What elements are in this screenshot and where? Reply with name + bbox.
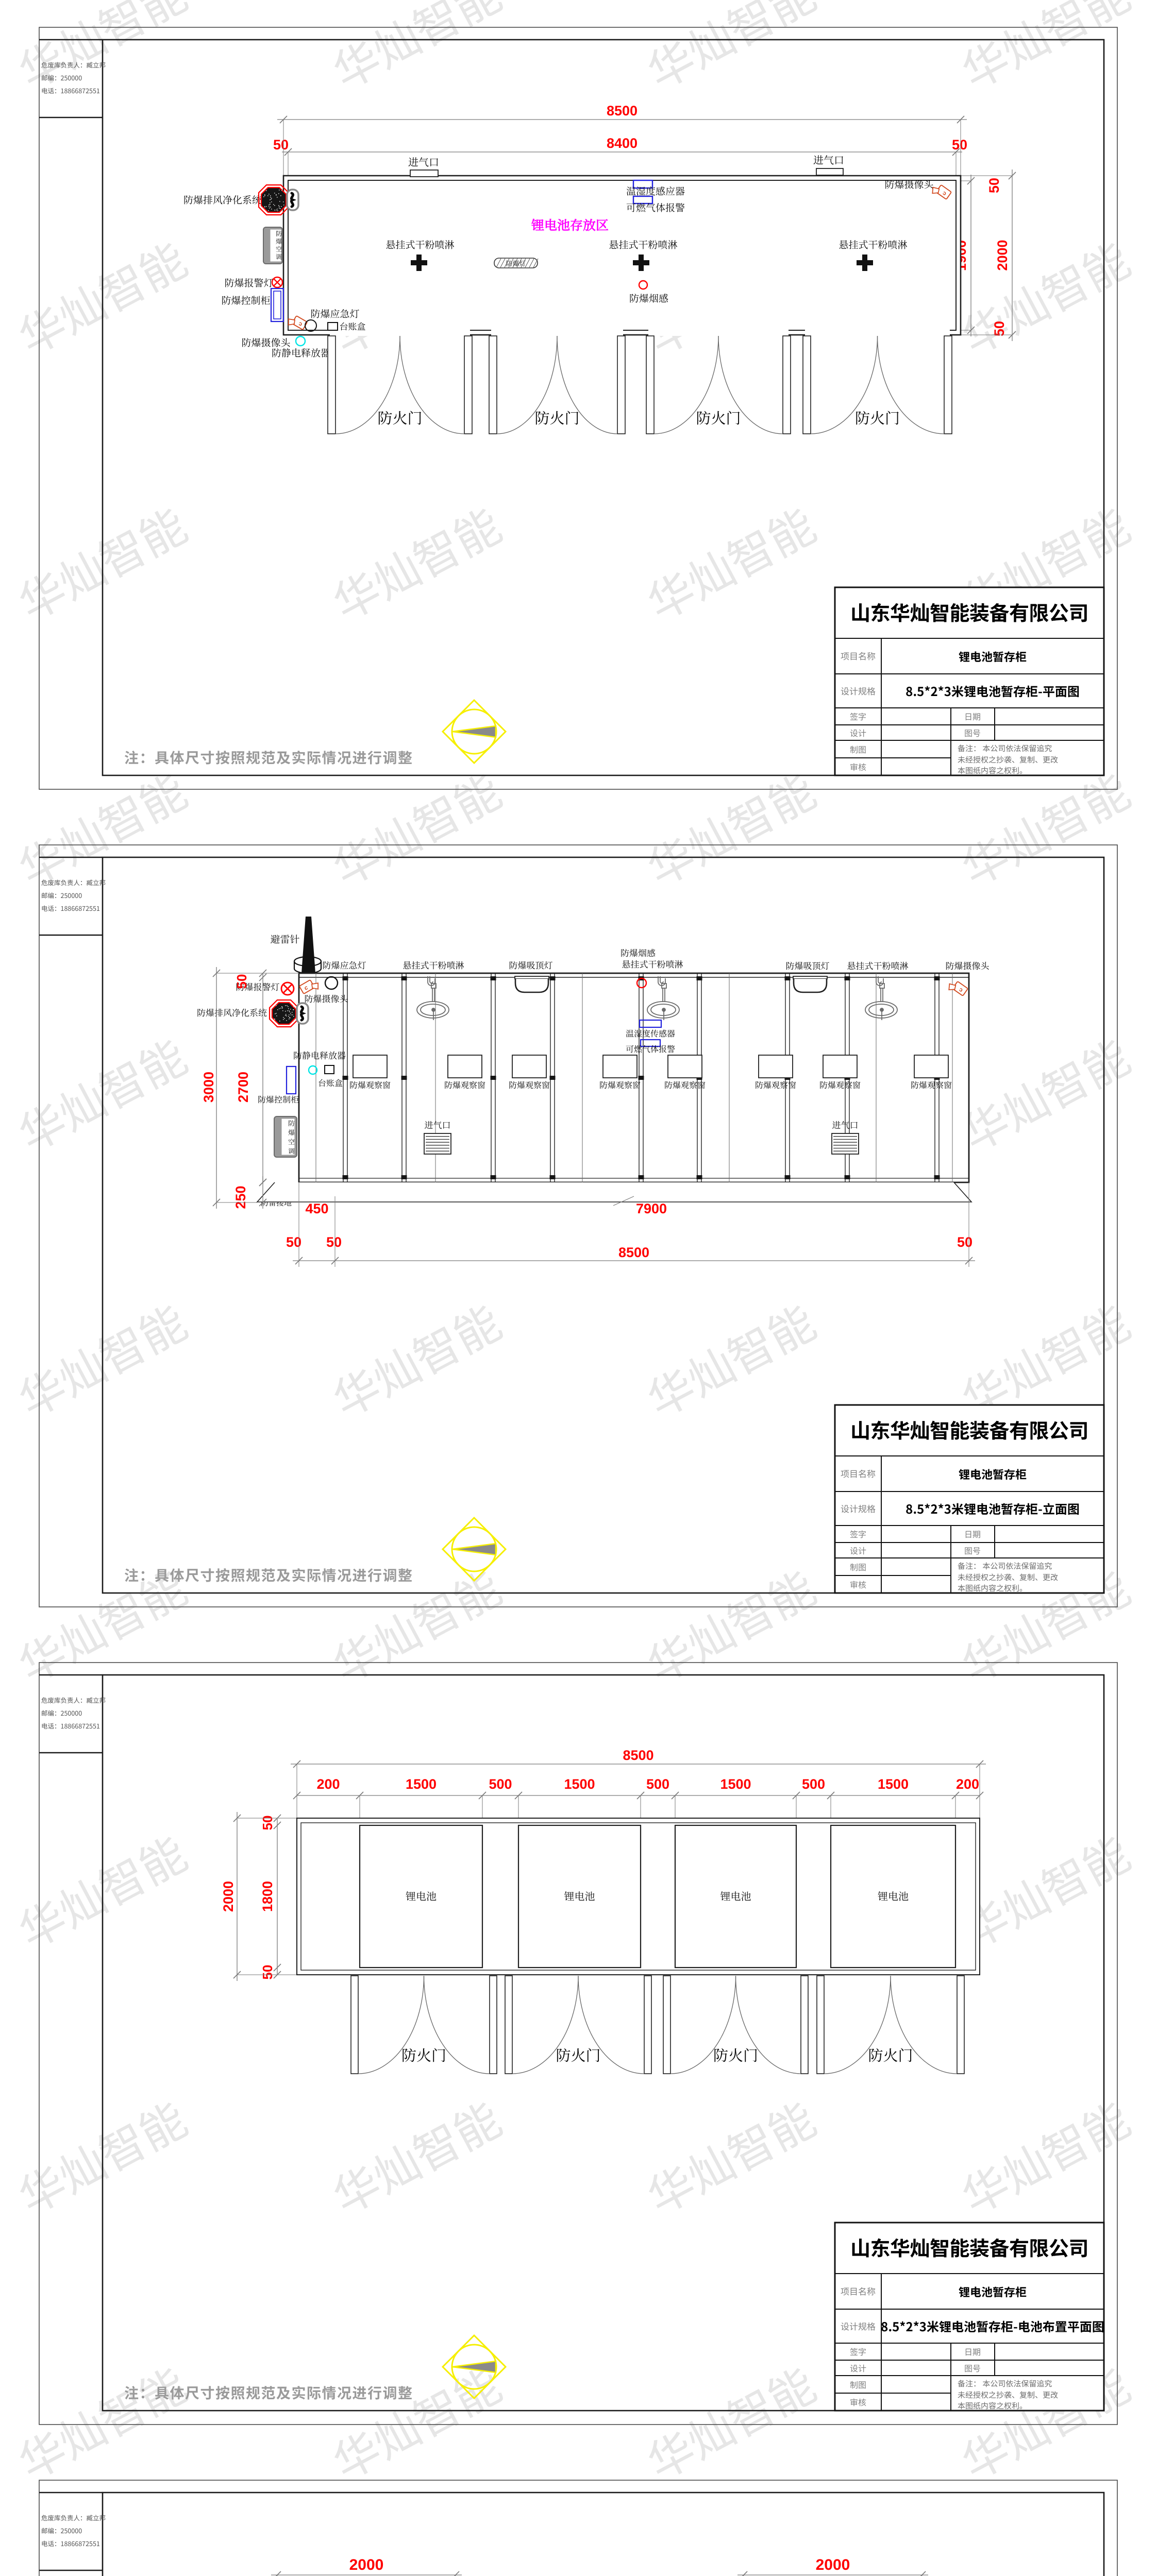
svg-text:防爆观察窗: 防爆观察窗 <box>349 1079 391 1091</box>
svg-text:设计规格: 设计规格 <box>841 2319 876 2332</box>
svg-text:1800: 1800 <box>260 1881 275 1912</box>
svg-text:签字: 签字 <box>850 710 866 722</box>
svg-text:设计: 设计 <box>850 1544 866 1556</box>
svg-text:本图纸内容之权利。: 本图纸内容之权利。 <box>958 765 1027 776</box>
svg-text:防爆报警灯: 防爆报警灯 <box>224 276 273 290</box>
svg-text:防爆应急灯: 防爆应急灯 <box>310 307 359 320</box>
svg-text:2700: 2700 <box>236 1072 251 1103</box>
svg-text:危废库负责人：臧立邦: 危废库负责人：臧立邦 <box>41 2513 106 2522</box>
svg-text:邮编：250000: 邮编：250000 <box>41 890 82 900</box>
svg-text:项目名称: 项目名称 <box>841 649 876 662</box>
svg-text:制图: 制图 <box>850 743 866 755</box>
svg-text:防: 防 <box>288 1118 295 1128</box>
svg-text:50: 50 <box>260 1816 275 1831</box>
svg-text:200: 200 <box>316 1776 340 1792</box>
svg-text:500: 500 <box>489 1776 512 1792</box>
svg-text:日期: 日期 <box>964 710 981 722</box>
svg-text:悬挂式干粉喷淋: 悬挂式干粉喷淋 <box>385 238 454 251</box>
svg-text:防静电释放器: 防静电释放器 <box>293 1048 346 1061</box>
svg-text:8500: 8500 <box>623 1748 653 1763</box>
svg-text:山东华灿智能装备有限公司: 山东华灿智能装备有限公司 <box>850 1415 1088 1444</box>
svg-text:防爆摄像头: 防爆摄像头 <box>884 177 934 191</box>
svg-text:华灿智能: 华灿智能 <box>6 2084 196 2227</box>
svg-text:图号: 图号 <box>964 726 981 739</box>
svg-text:防爆应急灯: 防爆应急灯 <box>323 958 366 971</box>
svg-text:防爆烟感: 防爆烟感 <box>629 291 668 305</box>
svg-text:制图: 制图 <box>850 1561 866 1573</box>
svg-text:电话：18866872551: 电话：18866872551 <box>41 2538 100 2548</box>
svg-text:本图纸内容之权利。: 本图纸内容之权利。 <box>958 2400 1027 2411</box>
svg-text:可燃气体报警: 可燃气体报警 <box>626 1043 675 1055</box>
svg-text:200: 200 <box>956 1776 979 1792</box>
svg-text:防爆观察窗: 防爆观察窗 <box>509 1079 550 1091</box>
svg-text:防火门: 防火门 <box>713 2044 758 2065</box>
svg-text:50: 50 <box>326 1234 342 1250</box>
svg-text:华灿智能: 华灿智能 <box>949 0 1139 102</box>
svg-text:设计规格: 设计规格 <box>841 684 876 697</box>
svg-text:华灿智能: 华灿智能 <box>6 1287 196 1430</box>
svg-text:1500: 1500 <box>564 1776 595 1792</box>
svg-text:华灿智能: 华灿智能 <box>320 756 511 899</box>
svg-text:危废库负责人：臧立邦: 危废库负责人：臧立邦 <box>41 60 106 70</box>
svg-text:审核: 审核 <box>850 760 866 773</box>
svg-text:备注： 本公司依法保留追究: 备注： 本公司依法保留追究 <box>958 2378 1052 2389</box>
svg-text:悬挂式干粉喷淋: 悬挂式干粉喷淋 <box>839 238 907 251</box>
svg-text:未经授权之抄袭、复制、更改: 未经授权之抄袭、复制、更改 <box>958 1572 1058 1583</box>
svg-text:未经授权之抄袭、复制、更改: 未经授权之抄袭、复制、更改 <box>958 2389 1058 2400</box>
svg-text:电话：18866872551: 电话：18866872551 <box>41 86 100 95</box>
svg-text:华灿智能: 华灿智能 <box>6 1819 196 1961</box>
svg-text:注：具体尺寸按照规范及实际情况进行调整: 注：具体尺寸按照规范及实际情况进行调整 <box>124 747 413 768</box>
svg-text:防火门: 防火门 <box>534 407 579 428</box>
svg-text:项目名称: 项目名称 <box>841 2284 876 2297</box>
svg-text:电话：18866872551: 电话：18866872551 <box>41 1721 100 1731</box>
svg-text:邮编：250000: 邮编：250000 <box>41 73 82 82</box>
svg-text:锂电池暂存柜: 锂电池暂存柜 <box>959 648 1027 665</box>
svg-text:华灿智能: 华灿智能 <box>6 0 196 102</box>
svg-text:备注： 本公司依法保留追究: 备注： 本公司依法保留追究 <box>958 743 1052 754</box>
svg-text:防爆灯: 防爆灯 <box>506 258 526 268</box>
svg-text:进气口: 进气口 <box>425 1118 451 1131</box>
svg-text:防爆控制柜: 防爆控制柜 <box>258 1093 299 1105</box>
svg-text:锂电池暂存柜: 锂电池暂存柜 <box>959 2283 1027 2300</box>
svg-text:50: 50 <box>952 137 967 152</box>
svg-text:防爆摄像头: 防爆摄像头 <box>946 959 990 972</box>
svg-text:8400: 8400 <box>607 135 638 151</box>
svg-text:华灿智能: 华灿智能 <box>320 490 511 633</box>
svg-text:防爆观察窗: 防爆观察窗 <box>755 1079 796 1091</box>
svg-text:山东华灿智能装备有限公司: 山东华灿智能装备有限公司 <box>850 2233 1088 2262</box>
svg-text:悬挂式干粉喷淋: 悬挂式干粉喷淋 <box>403 958 464 971</box>
svg-text:7900: 7900 <box>636 1201 667 1216</box>
svg-text:锂电池暂存柜: 锂电池暂存柜 <box>959 1466 1027 1482</box>
svg-text:防爆观察窗: 防爆观察窗 <box>911 1079 952 1091</box>
svg-text:台账盒: 台账盒 <box>318 1077 343 1089</box>
svg-text:500: 500 <box>646 1776 669 1792</box>
svg-text:华灿智能: 华灿智能 <box>949 2084 1139 2227</box>
svg-text:日期: 日期 <box>964 2345 981 2358</box>
svg-text:邮编：250000: 邮编：250000 <box>41 2526 82 2535</box>
svg-text:进气口: 进气口 <box>408 154 439 169</box>
svg-text:8.5*2*3米锂电池暂存柜-电池布置平面图: 8.5*2*3米锂电池暂存柜-电池布置平面图 <box>881 2317 1104 2335</box>
svg-text:2000: 2000 <box>221 1881 236 1912</box>
svg-text:8.5*2*3米锂电池暂存柜-立面图: 8.5*2*3米锂电池暂存柜-立面图 <box>906 1499 1080 1517</box>
svg-text:50: 50 <box>986 178 1002 193</box>
svg-text:注：具体尺寸按照规范及实际情况进行调整: 注：具体尺寸按照规范及实际情况进行调整 <box>124 2382 413 2403</box>
svg-text:50: 50 <box>273 137 289 152</box>
svg-text:50: 50 <box>286 1234 301 1250</box>
svg-text:50: 50 <box>957 1234 972 1250</box>
svg-text:审核: 审核 <box>850 1578 866 1590</box>
svg-text:华灿智能: 华灿智能 <box>634 0 825 102</box>
svg-text:华灿智能: 华灿智能 <box>6 225 196 367</box>
svg-text:500: 500 <box>802 1776 825 1792</box>
svg-text:防爆排风净化系统: 防爆排风净化系统 <box>183 193 262 207</box>
svg-text:进气口: 进气口 <box>832 1118 859 1131</box>
svg-text:50: 50 <box>992 321 1007 336</box>
svg-text:防爆排风净化系统: 防爆排风净化系统 <box>197 1006 267 1019</box>
svg-text:锂电池: 锂电池 <box>720 1888 751 1903</box>
svg-text:2000: 2000 <box>995 240 1010 270</box>
svg-text:防爆观察窗: 防爆观察窗 <box>819 1079 861 1091</box>
svg-text:电话：18866872551: 电话：18866872551 <box>41 903 100 913</box>
svg-text:3000: 3000 <box>201 1072 216 1103</box>
svg-text:1500: 1500 <box>878 1776 909 1792</box>
svg-text:华灿智能: 华灿智能 <box>6 490 196 633</box>
svg-text:防火门: 防火门 <box>855 407 900 428</box>
svg-text:未经授权之抄袭、复制、更改: 未经授权之抄袭、复制、更改 <box>958 754 1058 765</box>
svg-text:本图纸内容之权利。: 本图纸内容之权利。 <box>958 1583 1027 1594</box>
svg-text:华灿智能: 华灿智能 <box>6 2350 196 2493</box>
svg-text:图号: 图号 <box>964 1544 981 1556</box>
svg-text:危废库负责人：臧立邦: 危废库负责人：臧立邦 <box>41 877 106 887</box>
svg-text:邮编：250000: 邮编：250000 <box>41 1708 82 1718</box>
svg-text:450: 450 <box>305 1201 328 1216</box>
svg-text:爆: 爆 <box>288 1127 295 1137</box>
svg-text:防爆吸顶灯: 防爆吸顶灯 <box>509 958 553 971</box>
svg-text:锂电池: 锂电池 <box>878 1888 909 1903</box>
svg-text:华灿智能: 华灿智能 <box>320 0 511 102</box>
svg-text:华灿智能: 华灿智能 <box>949 1022 1139 1164</box>
svg-text:台账盒: 台账盒 <box>340 319 366 332</box>
svg-text:防爆控制柜: 防爆控制柜 <box>221 293 270 307</box>
svg-text:8.5*2*3米锂电池暂存柜-平面图: 8.5*2*3米锂电池暂存柜-平面图 <box>906 682 1080 700</box>
svg-text:防静电释放器: 防静电释放器 <box>272 346 330 360</box>
svg-text:空: 空 <box>288 1137 295 1146</box>
svg-text:注：具体尺寸按照规范及实际情况进行调整: 注：具体尺寸按照规范及实际情况进行调整 <box>124 1565 413 1585</box>
svg-text:制图: 制图 <box>850 2378 866 2391</box>
svg-text:250: 250 <box>233 1185 248 1209</box>
svg-text:调: 调 <box>288 1146 295 1156</box>
svg-text:华灿智能: 华灿智能 <box>634 1287 825 1430</box>
svg-text:8500: 8500 <box>618 1245 649 1260</box>
svg-text:悬挂式干粉喷淋: 悬挂式干粉喷淋 <box>847 959 909 972</box>
svg-text:2000: 2000 <box>349 2556 384 2573</box>
svg-text:日期: 日期 <box>964 1528 981 1540</box>
svg-text:防火门: 防火门 <box>377 407 422 428</box>
svg-text:可燃气体报警: 可燃气体报警 <box>626 200 685 214</box>
svg-text:审核: 审核 <box>850 2396 866 2408</box>
svg-text:悬挂式干粉喷淋: 悬挂式干粉喷淋 <box>622 957 683 970</box>
svg-text:锂电池存放区: 锂电池存放区 <box>531 215 609 234</box>
svg-text:华灿智能: 华灿智能 <box>320 1287 511 1430</box>
svg-text:防火门: 防火门 <box>696 407 741 428</box>
svg-text:防爆吸顶灯: 防爆吸顶灯 <box>786 959 830 972</box>
svg-text:50: 50 <box>234 974 249 989</box>
svg-text:防爆摄像头: 防爆摄像头 <box>305 992 349 1005</box>
svg-text:签字: 签字 <box>850 1528 866 1540</box>
svg-text:50: 50 <box>260 1965 275 1980</box>
svg-text:2000: 2000 <box>816 2556 850 2573</box>
svg-text:危废库负责人：臧立邦: 危废库负责人：臧立邦 <box>41 1695 106 1705</box>
svg-text:温湿度传感器: 温湿度传感器 <box>626 1027 675 1039</box>
svg-text:防火门: 防火门 <box>401 2044 446 2065</box>
svg-text:防火门: 防火门 <box>556 2044 600 2065</box>
svg-text:项目名称: 项目名称 <box>841 1467 876 1480</box>
svg-text:防火门: 防火门 <box>868 2044 913 2065</box>
svg-text:防爆观察窗: 防爆观察窗 <box>599 1079 641 1091</box>
svg-text:锂电池: 锂电池 <box>406 1888 437 1903</box>
svg-text:调: 调 <box>276 252 282 261</box>
svg-text:防爆观察窗: 防爆观察窗 <box>664 1079 706 1091</box>
svg-text:华灿智能: 华灿智能 <box>949 756 1139 899</box>
svg-text:设计: 设计 <box>850 726 866 739</box>
svg-text:图号: 图号 <box>964 2362 981 2374</box>
svg-text:设计: 设计 <box>850 2362 866 2374</box>
svg-text:8500: 8500 <box>607 103 638 118</box>
svg-text:防爆观察窗: 防爆观察窗 <box>444 1079 485 1091</box>
svg-text:设计规格: 设计规格 <box>841 1502 876 1515</box>
svg-text:华灿智能: 华灿智能 <box>634 756 825 899</box>
svg-text:进气口: 进气口 <box>813 152 844 167</box>
svg-text:1500: 1500 <box>406 1776 437 1792</box>
svg-text:签字: 签字 <box>850 2345 866 2358</box>
svg-text:华灿智能: 华灿智能 <box>6 1022 196 1164</box>
svg-text:华灿智能: 华灿智能 <box>634 2350 825 2493</box>
svg-text:华灿智能: 华灿智能 <box>634 490 825 633</box>
svg-text:备注： 本公司依法保留追究: 备注： 本公司依法保留追究 <box>958 1561 1052 1571</box>
svg-text:华灿智能: 华灿智能 <box>949 225 1139 367</box>
svg-text:华灿智能: 华灿智能 <box>320 2084 511 2227</box>
svg-text:1500: 1500 <box>720 1776 751 1792</box>
svg-text:华灿智能: 华灿智能 <box>634 2084 825 2227</box>
svg-text:锂电池: 锂电池 <box>564 1888 595 1903</box>
svg-text:避雷针: 避雷针 <box>270 932 299 946</box>
svg-text:悬挂式干粉喷淋: 悬挂式干粉喷淋 <box>609 238 677 251</box>
svg-text:山东华灿智能装备有限公司: 山东华灿智能装备有限公司 <box>850 598 1088 626</box>
